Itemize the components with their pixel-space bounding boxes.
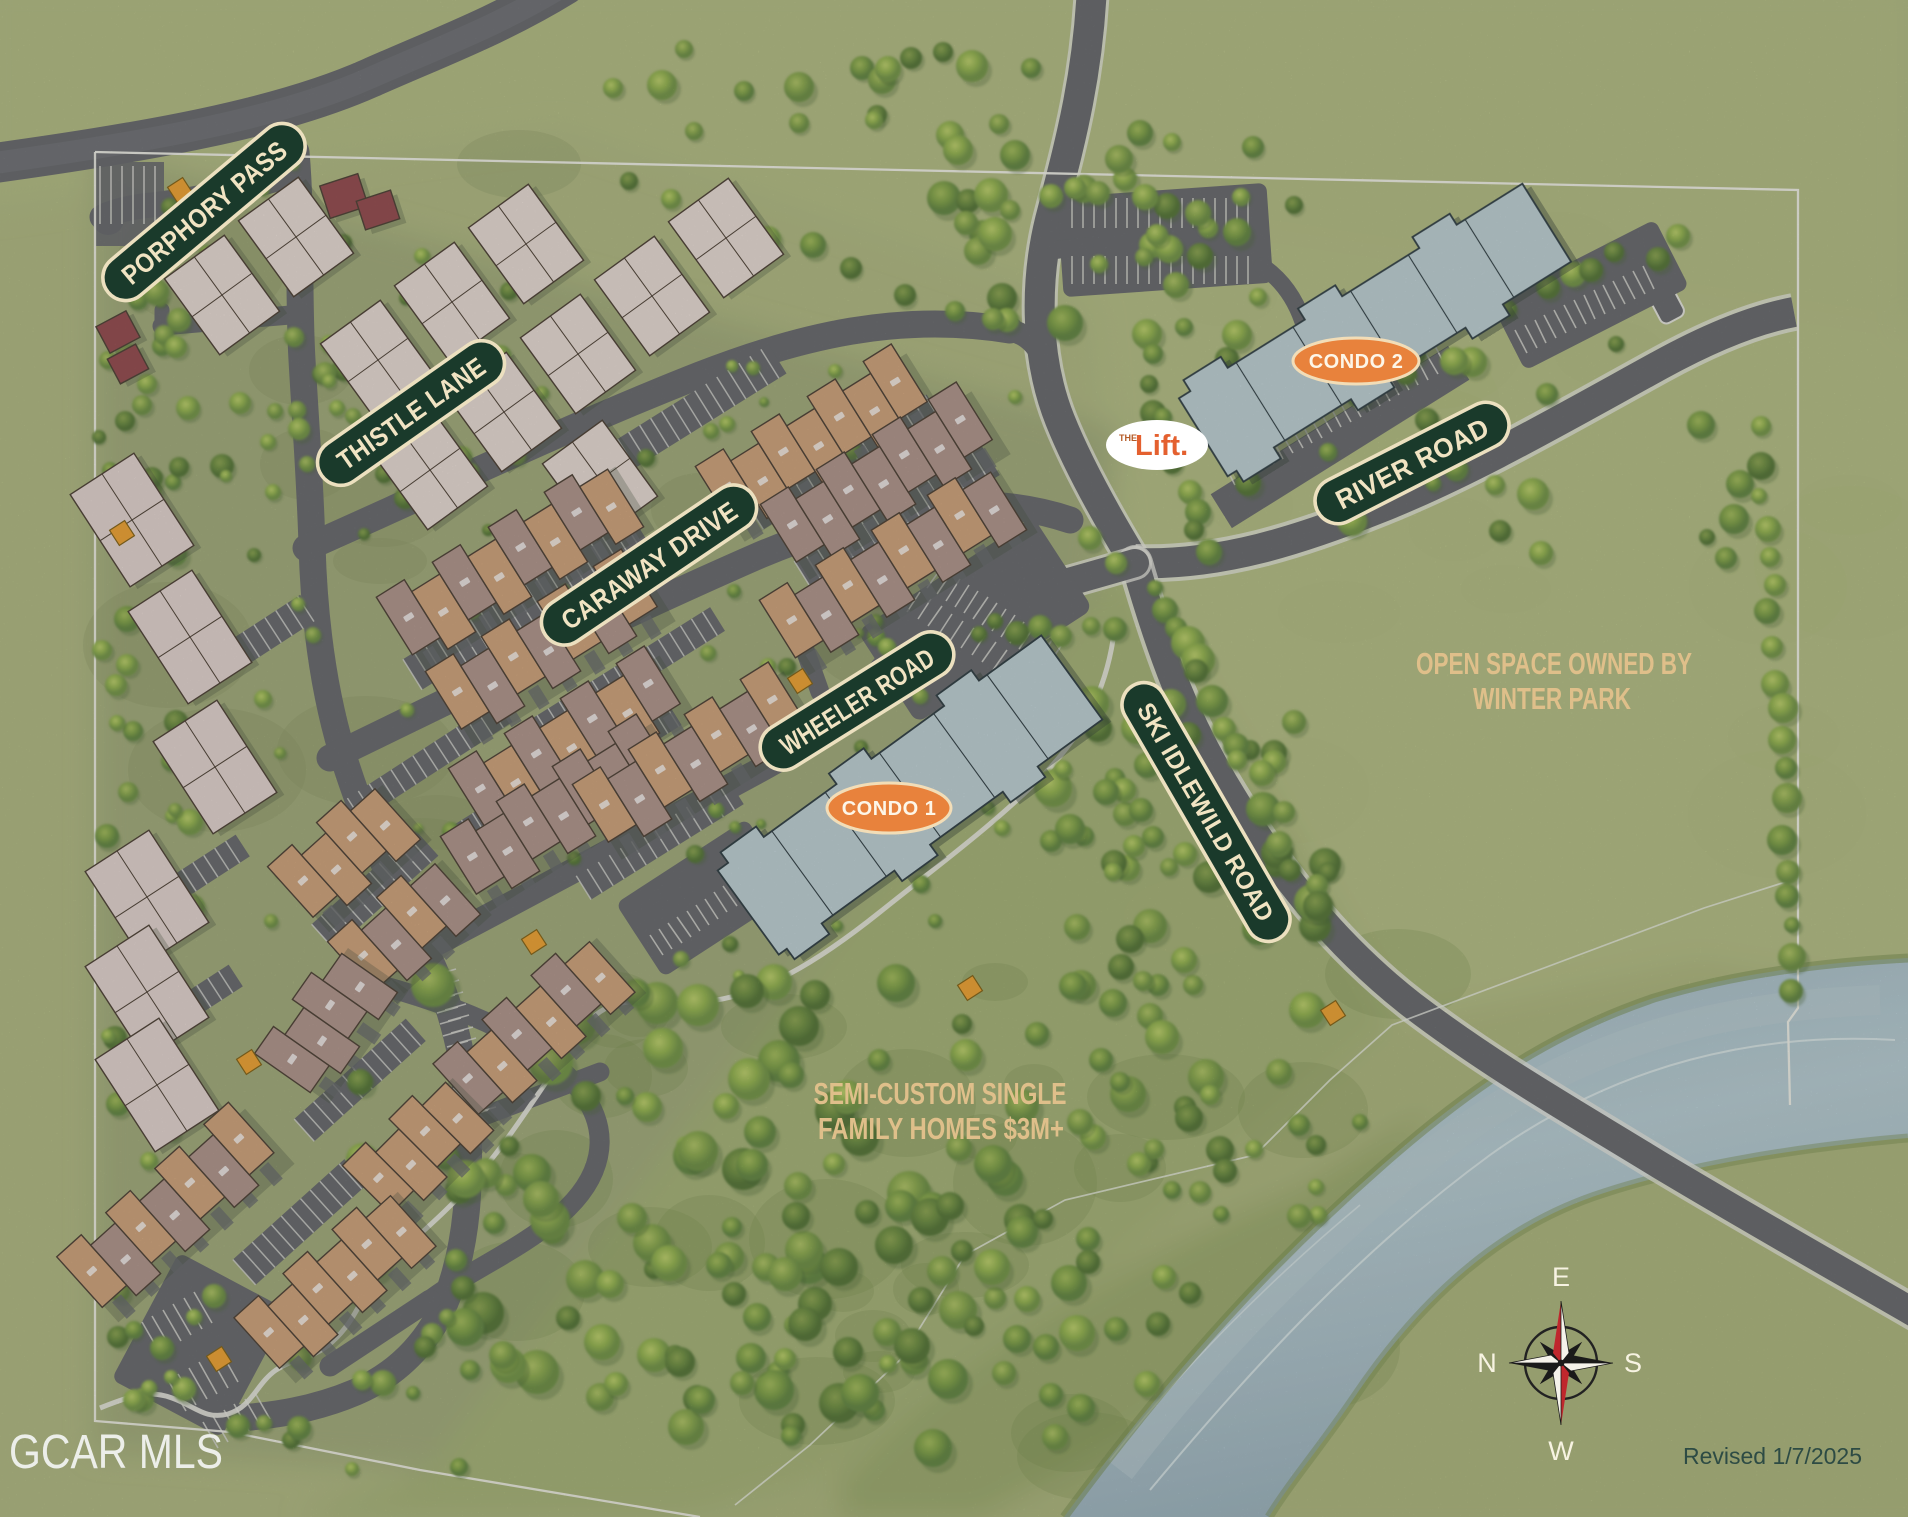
svg-text:E: E [1552, 1262, 1570, 1292]
svg-text:SEMI-CUSTOM SINGLE: SEMI-CUSTOM SINGLE [814, 1076, 1067, 1111]
svg-text:CONDO 1: CONDO 1 [842, 798, 937, 820]
svg-text:N: N [1477, 1348, 1497, 1378]
svg-text:GCAR MLS: GCAR MLS [9, 1426, 223, 1479]
svg-text:W: W [1548, 1436, 1574, 1466]
svg-text:Lift.: Lift. [1135, 430, 1188, 462]
svg-text:FAMILY HOMES $3M+: FAMILY HOMES $3M+ [818, 1111, 1064, 1146]
svg-text:WINTER PARK: WINTER PARK [1473, 681, 1631, 716]
svg-text:Revised 1/7/2025: Revised 1/7/2025 [1683, 1443, 1862, 1469]
svg-text:OPEN SPACE OWNED BY: OPEN SPACE OWNED BY [1416, 646, 1692, 681]
svg-text:CONDO 2: CONDO 2 [1309, 351, 1404, 373]
svg-text:S: S [1624, 1348, 1642, 1378]
